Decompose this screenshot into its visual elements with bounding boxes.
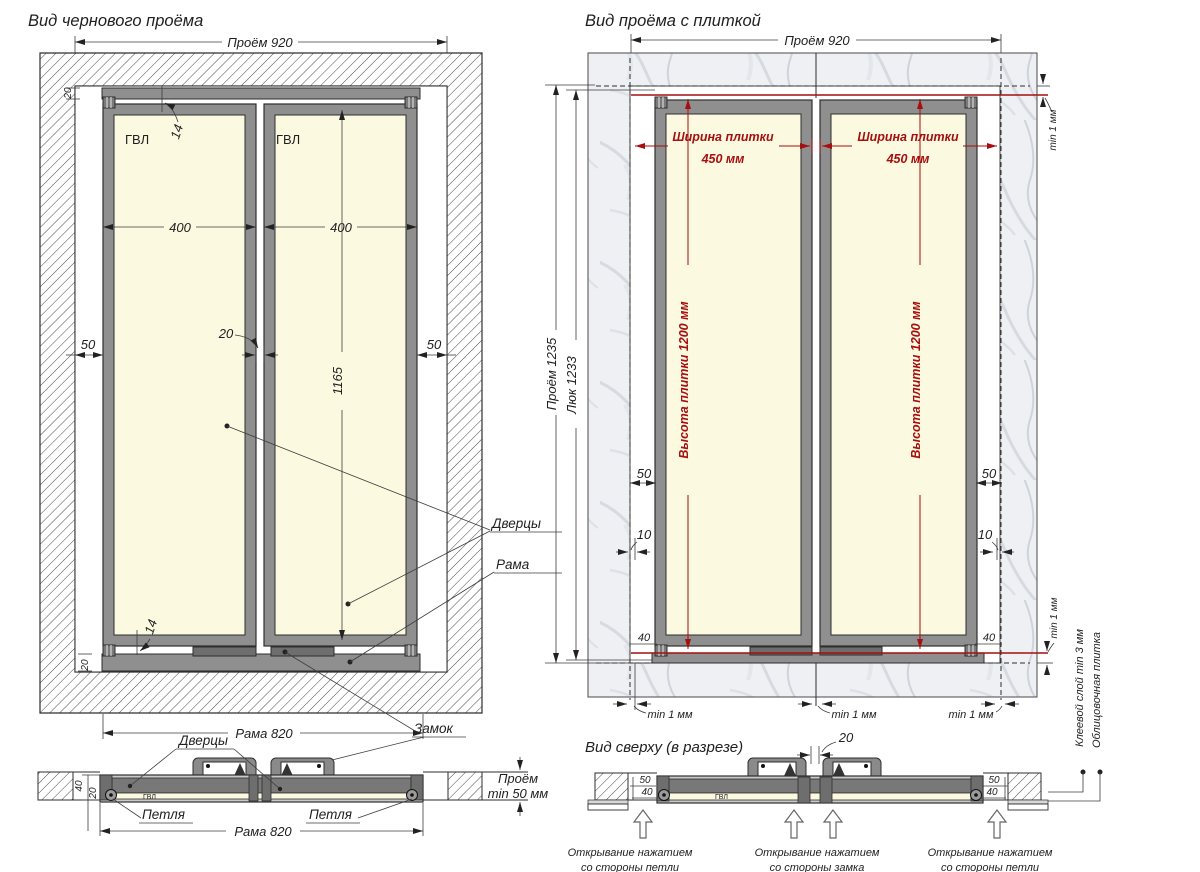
frame-width-value: Рама 820: [235, 726, 293, 741]
right-section-hinge-right: [971, 790, 982, 801]
opening-depth-line2: min 50 мм: [488, 786, 549, 801]
drawing-page: Вид чернового проёма Проём 920 ГВЛ ГВЛ 4…: [0, 0, 1200, 872]
tile-layer-right: [1008, 800, 1048, 810]
label-doors: Дверцы: [490, 516, 541, 531]
right-section-hinge-left: [659, 790, 670, 801]
left-door-left: [103, 104, 256, 646]
right-dim10-left: 10: [637, 527, 652, 542]
left-view: Вид чернового проёма Проём 920 ГВЛ ГВЛ 4…: [28, 12, 562, 771]
right-latch-left: [750, 647, 812, 655]
right-latch-right: [820, 647, 882, 655]
right-dim50-left: 50: [637, 466, 652, 481]
open-right-line2: со стороны петли: [941, 862, 1039, 872]
left-latch-right: [271, 647, 334, 656]
label-hinge-right: Петля: [309, 807, 352, 822]
left-frame-top-rail: [102, 88, 420, 99]
right-hatch-height-value: Люк 1233: [564, 356, 579, 415]
left-frame-bottom-rail: [102, 654, 420, 671]
min1-top-right-value: min 1 мм: [1048, 109, 1059, 150]
right-opening-height-value: Проём 1235: [544, 337, 559, 410]
rs-50-right: 50: [988, 775, 1000, 786]
right-wall-block-right: [1008, 773, 1041, 800]
left-latch-left: [193, 647, 256, 656]
right-dim50-right: 50: [982, 466, 997, 481]
opening-method-labels: Открывание нажатием со стороны петли Отк…: [568, 847, 1053, 872]
rs-40-right: 40: [986, 787, 998, 798]
section-dim-20: 20: [88, 787, 99, 800]
open-center-line1: Открывание нажатием: [755, 847, 880, 859]
right-section-title: Вид сверху (в разрезе): [585, 739, 743, 756]
bottom-rail-value: 20: [80, 659, 91, 672]
right-frame-bottom-rail: [652, 653, 984, 663]
edge-min1-top: min 1 мм: [1037, 74, 1059, 150]
section-hinge-left: [106, 790, 117, 801]
right-wall-block-left: [595, 773, 628, 800]
rs-40-left: 40: [641, 787, 653, 798]
section-label-doors: Дверцы: [177, 733, 228, 748]
push-open-arrows: [634, 810, 1006, 838]
wall-block-left: [38, 772, 73, 800]
right-section-gap-value: 20: [838, 730, 854, 745]
opening-depth-line1: Проём: [498, 771, 538, 786]
opening-depth-dim: Проём min 50 мм: [488, 757, 549, 816]
panel-material-right: ГВЛ: [276, 132, 300, 147]
open-left-line1: Открывание нажатием: [568, 847, 693, 859]
right-section-view: Вид сверху (в разрезе) 20: [568, 730, 1053, 872]
wall-block-right: [448, 772, 482, 800]
label-glue-layer: Клеевой слой min 3 мм: [1074, 629, 1086, 747]
section-depth-dims: 40 20: [74, 775, 100, 831]
rs-50-left: 50: [639, 775, 651, 786]
side-gap-left: 50: [81, 337, 96, 352]
section-frame-width-value: Рама 820: [234, 824, 292, 839]
section-bar: ГВЛ: [100, 775, 423, 802]
side-gap-right: 50: [427, 337, 442, 352]
section-hinge-right: [407, 790, 418, 801]
door-height-value: 1165: [330, 366, 345, 395]
tile-height-right-value: Высота плитки 1200 мм: [909, 301, 923, 458]
top-rail-value: 20: [63, 87, 74, 100]
tile-width-right-line1: Ширина плитки: [857, 130, 959, 144]
right-opening-width-value: Проём 920: [784, 33, 850, 48]
right-opening-width-dim: Проём 920: [631, 33, 1001, 53]
right-section-bar: ГВЛ: [657, 776, 983, 803]
door-width-right: 400: [330, 220, 352, 235]
left-view-title: Вид чернового проёма: [28, 12, 203, 30]
center-gap-value: 20: [218, 326, 234, 341]
left-opening-width-value: Проём 920: [227, 35, 293, 50]
right-dim10-right: 10: [978, 527, 993, 542]
right-door-right: [820, 100, 977, 646]
right-section-material: ГВЛ: [715, 794, 728, 801]
right-view: Вид проёма с плиткой Проём 920: [544, 12, 1103, 801]
min1-bottom-edge-value: min 1 мм: [1049, 597, 1060, 638]
label-facing-tile: Облицовочная плитка: [1091, 632, 1103, 748]
left-section-view: ГВЛ 40 20 Дверцы Петля Петля Проём min 5…: [38, 733, 548, 839]
min1-bottom-left: min 1 мм: [647, 709, 692, 721]
label-frame: Рама: [496, 557, 530, 572]
label-lock: Замок: [414, 721, 454, 736]
min1-bottom-right: min 1 мм: [948, 709, 993, 721]
section-material-left: ГВЛ: [143, 794, 156, 801]
panel-material-left: ГВЛ: [125, 132, 149, 147]
open-right-line1: Открывание нажатием: [928, 847, 1053, 859]
label-hinge-left: Петля: [142, 807, 185, 822]
section-dim-40: 40: [74, 780, 85, 792]
open-center-line2: со стороны замка: [770, 862, 865, 872]
right-dim40-left: 40: [638, 632, 651, 644]
right-section-depth-right: 50 40: [980, 775, 1008, 800]
door-width-left: 400: [169, 220, 191, 235]
edge-min1-bottom: min 1 мм: [1037, 597, 1060, 675]
tile-layer-left: [588, 800, 628, 810]
tile-width-left-line2: 450 мм: [701, 152, 745, 166]
tile-height-left-value: Высота плитки 1200 мм: [677, 301, 691, 458]
left-frame-width-dim: Рама 820: [103, 714, 423, 741]
tile-width-right-line2: 450 мм: [886, 152, 930, 166]
open-left-line2: со стороны петли: [581, 862, 679, 872]
right-dim40-right: 40: [983, 632, 996, 644]
right-view-title: Вид проёма с плиткой: [585, 12, 761, 30]
layer-callouts: Клеевой слой min 3 мм Облицовочная плитк…: [1048, 629, 1103, 801]
technical-drawing: Вид чернового проёма Проём 920 ГВЛ ГВЛ 4…: [0, 0, 1200, 872]
min1-bottom-center: min 1 мм: [831, 709, 876, 721]
right-section-depth-left: 50 40: [630, 775, 658, 800]
